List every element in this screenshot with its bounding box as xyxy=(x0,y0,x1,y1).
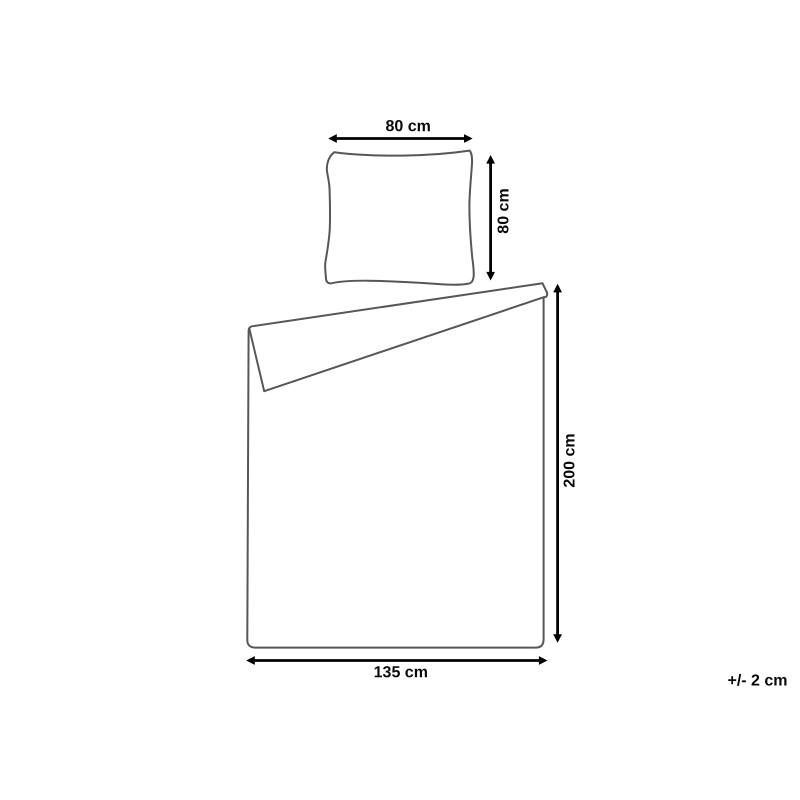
svg-text:200 cm: 200 cm xyxy=(562,433,579,487)
svg-text:80 cm: 80 cm xyxy=(386,118,431,135)
svg-text:80 cm: 80 cm xyxy=(496,188,513,233)
svg-text:135 cm: 135 cm xyxy=(374,664,428,681)
svg-text:+/- 2 cm: +/- 2 cm xyxy=(727,672,787,689)
